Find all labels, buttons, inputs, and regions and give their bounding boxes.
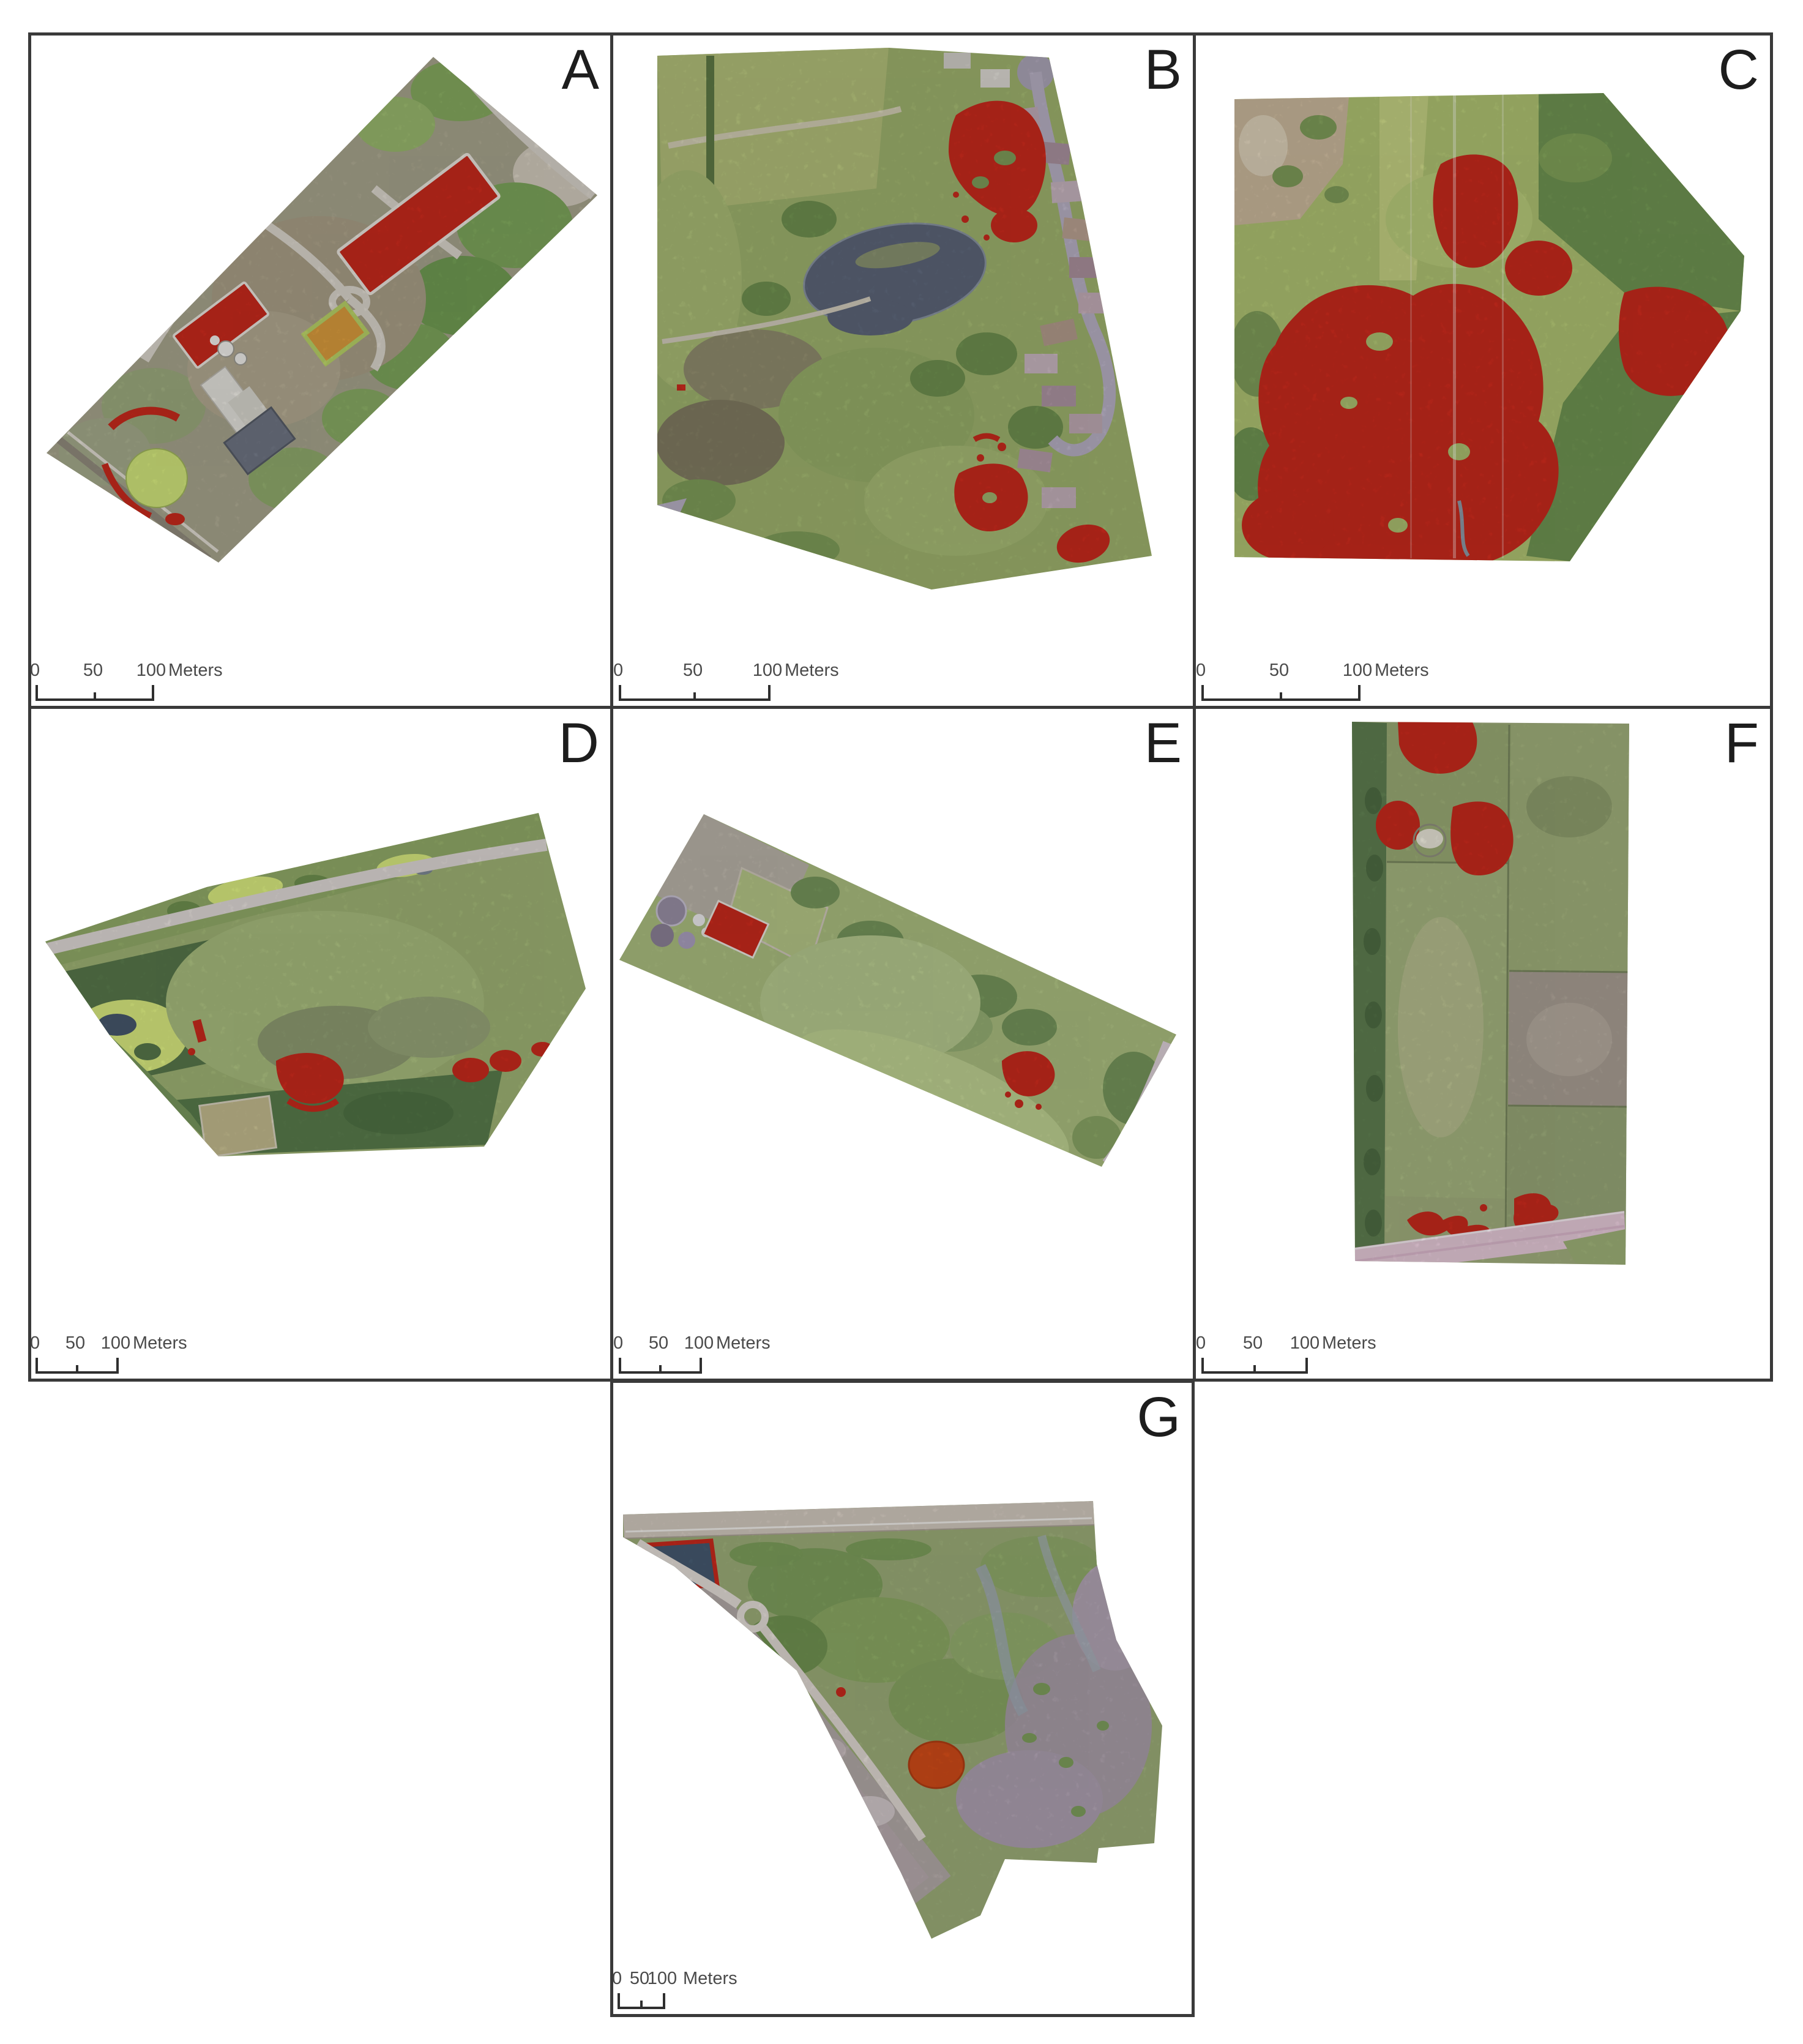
scalebar-bar xyxy=(35,681,157,702)
scalebar-units-label: Meters xyxy=(1375,661,1429,680)
panel-label-a: A xyxy=(562,42,599,98)
orthomosaic-a xyxy=(31,36,610,706)
panel-label-c: C xyxy=(1719,42,1759,98)
panel-g: G 0 50 100 Meters xyxy=(613,1383,1192,2014)
scalebar-100-label: 100 xyxy=(749,661,786,680)
scalebar-bar xyxy=(618,681,772,702)
scalebar-a: 0 50 100 Meters xyxy=(35,661,231,703)
panel-label-g: G xyxy=(1137,1389,1181,1445)
orthomosaic-g xyxy=(613,1383,1192,2014)
scalebar-0-label: 0 xyxy=(613,661,623,680)
scalebar-100-label: 100 xyxy=(97,1333,134,1353)
scalebar-0-label: 0 xyxy=(613,1969,622,1988)
scalebar-d: 0 50 100 Meters xyxy=(35,1333,206,1376)
orthomosaic-b xyxy=(613,36,1193,706)
panel-f: F 0 50 100 Meters xyxy=(1196,709,1770,1379)
scalebar-units-label: Meters xyxy=(133,1333,187,1353)
scalebar-units-label: Meters xyxy=(716,1333,771,1353)
scalebar-units-label: Meters xyxy=(168,661,223,680)
scalebar-100-label: 100 xyxy=(1339,661,1376,680)
panel-e: E 0 50 100 Meters xyxy=(613,709,1193,1379)
scalebar-50-label: 50 xyxy=(81,661,105,680)
panel-label-d: D xyxy=(559,715,599,771)
scalebar-units-label: Meters xyxy=(785,661,839,680)
scalebar-units-label: Meters xyxy=(683,1969,737,1988)
orthomosaic-c xyxy=(1196,36,1770,706)
scalebar-0-label: 0 xyxy=(613,1333,623,1353)
scalebar-b: 0 50 100 Meters xyxy=(618,661,851,703)
scalebar-100-label: 100 xyxy=(644,1969,681,1988)
scalebar-bar xyxy=(1201,681,1362,702)
scalebar-bar xyxy=(618,1354,704,1375)
scalebar-c: 0 50 100 Meters xyxy=(1201,661,1446,703)
panel-a: A 0 50 100 Meters xyxy=(31,36,610,706)
multi-panel-orthomosaic-figure: A 0 50 100 Meters xyxy=(0,0,1803,2044)
scalebar-bar xyxy=(35,1354,121,1375)
panel-b: B 0 50 100 Meters xyxy=(613,36,1193,706)
panel-label-e: E xyxy=(1144,715,1182,771)
scalebar-0-label: 0 xyxy=(31,1333,40,1353)
panel-label-f: F xyxy=(1725,715,1759,771)
scalebar-50-label: 50 xyxy=(1267,661,1291,680)
scalebar-e: 0 50 100 Meters xyxy=(618,1333,790,1376)
orthomosaic-f xyxy=(1196,709,1770,1379)
scalebar-100-label: 100 xyxy=(133,661,170,680)
orthomosaic-d xyxy=(31,709,610,1379)
orthomosaic-e xyxy=(613,709,1193,1379)
scalebar-bar xyxy=(1201,1354,1310,1375)
scalebar-100-label: 100 xyxy=(681,1333,717,1353)
scalebar-f: 0 50 100 Meters xyxy=(1201,1333,1397,1376)
scalebar-0-label: 0 xyxy=(1196,1333,1206,1353)
panel-label-b: B xyxy=(1144,42,1182,98)
panel-c: C 0 50 100 Meters xyxy=(1196,36,1770,706)
scalebar-bar xyxy=(617,1990,667,2010)
scalebar-100-label: 100 xyxy=(1286,1333,1323,1353)
scalebar-50-label: 50 xyxy=(646,1333,671,1353)
scalebar-50-label: 50 xyxy=(681,661,705,680)
panel-d: D 0 50 100 Meters xyxy=(31,709,610,1379)
scalebar-units-label: Meters xyxy=(1322,1333,1376,1353)
scalebar-0-label: 0 xyxy=(1196,661,1206,680)
scalebar-0-label: 0 xyxy=(31,661,40,680)
scalebar-g: 0 50 100 Meters xyxy=(617,1969,764,2012)
scalebar-50-label: 50 xyxy=(63,1333,88,1353)
scalebar-50-label: 50 xyxy=(1241,1333,1265,1353)
